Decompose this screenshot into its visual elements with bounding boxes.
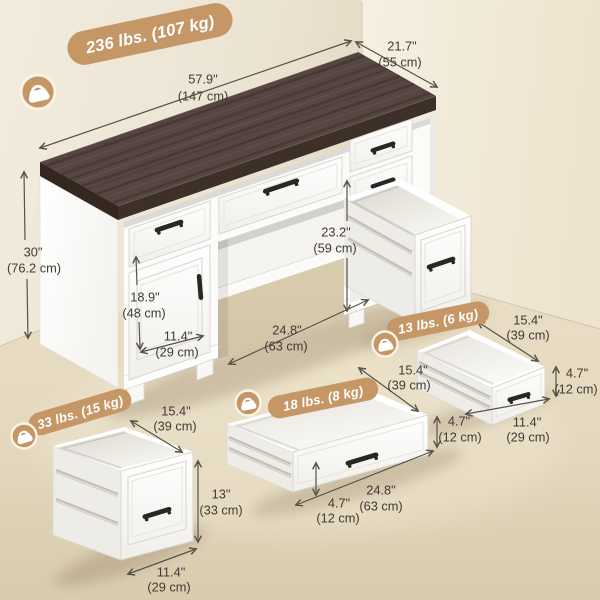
svg-text:(29 cm): (29 cm) — [155, 345, 198, 360]
svg-text:(59 cm): (59 cm) — [313, 241, 356, 256]
svg-text:(55 cm): (55 cm) — [378, 55, 421, 70]
svg-text:57.9": 57.9" — [188, 72, 217, 87]
product-dimension-illustration: 57.9" (147 cm) 21.7" (55 cm) 30" (76.2 c… — [0, 0, 600, 600]
svg-text:(39 cm): (39 cm) — [153, 419, 196, 434]
svg-text:(29 cm): (29 cm) — [147, 580, 190, 595]
svg-text:(63 cm): (63 cm) — [359, 499, 402, 514]
svg-text:11.4": 11.4" — [164, 329, 193, 344]
svg-text:4.7": 4.7" — [448, 414, 470, 429]
svg-text:13": 13" — [212, 487, 231, 502]
svg-text:(12 cm): (12 cm) — [554, 382, 597, 397]
svg-text:(33 cm): (33 cm) — [199, 503, 242, 518]
svg-text:(12 cm): (12 cm) — [438, 430, 481, 445]
svg-text:(63 cm): (63 cm) — [264, 339, 307, 354]
svg-text:(29 cm): (29 cm) — [506, 430, 549, 445]
svg-text:23.2": 23.2" — [321, 225, 350, 240]
svg-text:18.9": 18.9" — [130, 290, 159, 305]
svg-text:15.4": 15.4" — [398, 363, 427, 378]
svg-text:21.7": 21.7" — [387, 39, 416, 54]
svg-text:4.7": 4.7" — [328, 496, 350, 511]
svg-text:24.8": 24.8" — [366, 483, 395, 498]
svg-text:11.4": 11.4" — [157, 565, 186, 580]
svg-text:4.7": 4.7" — [566, 366, 588, 381]
svg-text:(48 cm): (48 cm) — [122, 306, 165, 321]
svg-text:(39 cm): (39 cm) — [506, 328, 549, 343]
svg-text:(39 cm): (39 cm) — [387, 378, 430, 393]
svg-text:24.8": 24.8" — [272, 323, 301, 338]
loose-file-drawer — [53, 427, 193, 560]
svg-text:30": 30" — [24, 245, 43, 260]
product-dimension-image: 57.9" (147 cm) 21.7" (55 cm) 30" (76.2 c… — [0, 0, 600, 600]
svg-text:(147 cm): (147 cm) — [178, 89, 229, 104]
svg-text:15.4": 15.4" — [513, 313, 542, 328]
svg-text:(76.2 cm): (76.2 cm) — [7, 261, 61, 276]
svg-text:15.4": 15.4" — [161, 404, 190, 419]
svg-text:(12 cm): (12 cm) — [316, 511, 359, 526]
svg-text:11.4": 11.4" — [513, 415, 542, 430]
